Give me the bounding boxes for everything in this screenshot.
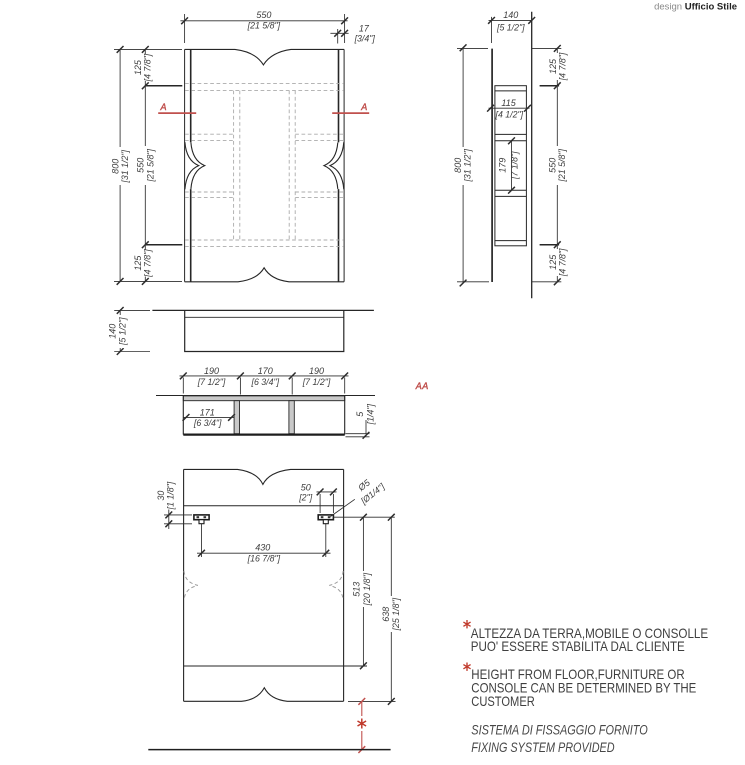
svg-text:[6 3/4"]: [6 3/4"] <box>251 377 280 387</box>
svg-text:PUO' ESSERE STABILITA DAL CLIE: PUO' ESSERE STABILITA DAL CLIENTE <box>471 639 685 654</box>
svg-text:550: 550 <box>256 10 271 20</box>
svg-text:[21 5/8"]: [21 5/8"] <box>145 149 155 183</box>
svg-text:170: 170 <box>258 366 273 376</box>
svg-text:design Ufficio Stile: design Ufficio Stile <box>654 2 737 13</box>
svg-text:[4 7/8"]: [4 7/8"] <box>557 52 567 81</box>
svg-text:171: 171 <box>200 408 215 418</box>
svg-text:513: 513 <box>352 582 362 597</box>
svg-text:[21 5/8"]: [21 5/8"] <box>557 149 567 183</box>
svg-text:190: 190 <box>204 366 219 376</box>
svg-text:140: 140 <box>108 324 118 339</box>
svg-text:[4 1/2"]: [4 1/2"] <box>495 109 524 119</box>
svg-text:[2"]: [2"] <box>298 493 312 503</box>
svg-text:A: A <box>360 102 367 112</box>
svg-text:[21 5/8"]: [21 5/8"] <box>247 21 281 31</box>
svg-text:A: A <box>159 102 166 112</box>
svg-text:430: 430 <box>255 542 270 552</box>
svg-text:[1/4"]: [1/4"] <box>365 404 375 426</box>
svg-text:[16 7/8"]: [16 7/8"] <box>247 554 281 564</box>
svg-text:SISTEMA DI FISSAGGIO FORNITO: SISTEMA DI FISSAGGIO FORNITO <box>471 723 648 738</box>
svg-text:[6 3/4"]: [6 3/4"] <box>193 418 222 428</box>
svg-text:[3/4"]: [3/4"] <box>354 34 376 44</box>
svg-text:[31 1/2"]: [31 1/2"] <box>462 149 472 183</box>
svg-text:179: 179 <box>498 158 508 173</box>
svg-text:[7 1/8"]: [7 1/8"] <box>509 151 519 180</box>
svg-text:FIXING SYSTEM PROVIDED: FIXING SYSTEM PROVIDED <box>471 740 614 755</box>
svg-text:CUSTOMER: CUSTOMER <box>471 694 535 709</box>
svg-text:800: 800 <box>110 159 120 174</box>
svg-text:[5 1/2"]: [5 1/2"] <box>496 22 525 32</box>
svg-text:550: 550 <box>136 158 146 173</box>
svg-text:550: 550 <box>547 158 557 173</box>
svg-text:190: 190 <box>309 366 324 376</box>
svg-text:[7 1/2"]: [7 1/2"] <box>197 377 226 387</box>
svg-text:AA: AA <box>415 381 429 391</box>
svg-text:800: 800 <box>453 158 463 173</box>
svg-text:[4 7/8"]: [4 7/8"] <box>557 248 567 277</box>
svg-text:[5 1/2"]: [5 1/2"] <box>117 317 127 346</box>
svg-text:[31 1/2"]: [31 1/2"] <box>120 150 130 184</box>
svg-text:[20 1/8"]: [20 1/8"] <box>362 572 372 606</box>
svg-text:140: 140 <box>503 10 518 20</box>
svg-text:[7 1/2"]: [7 1/2"] <box>302 377 331 387</box>
svg-text:[1 1/8"]: [1 1/8"] <box>165 481 175 510</box>
svg-text:[25 1/8"]: [25 1/8"] <box>391 597 401 631</box>
svg-text:638: 638 <box>381 607 391 622</box>
svg-text:[4 7/8"]: [4 7/8"] <box>142 249 152 278</box>
svg-text:50: 50 <box>301 482 311 492</box>
svg-text:17: 17 <box>359 23 370 33</box>
svg-text:[4 7/8"]: [4 7/8"] <box>142 53 152 82</box>
svg-text:115: 115 <box>501 98 516 108</box>
